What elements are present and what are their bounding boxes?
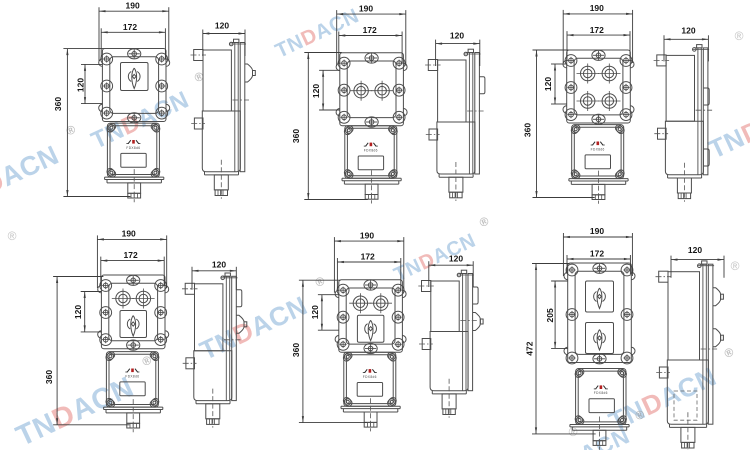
svg-text:190: 190 — [590, 226, 604, 236]
svg-text:172: 172 — [590, 25, 604, 35]
svg-text:360: 360 — [53, 97, 63, 111]
svg-text:172: 172 — [363, 25, 377, 35]
svg-text:360: 360 — [523, 123, 533, 137]
svg-text:120: 120 — [215, 20, 229, 30]
svg-text:360: 360 — [291, 343, 301, 357]
svg-text:120: 120 — [688, 245, 702, 255]
svg-text:190: 190 — [126, 1, 140, 11]
svg-text:120: 120 — [450, 31, 464, 41]
svg-text:FDX8d6: FDX8d6 — [363, 375, 377, 379]
svg-text:205: 205 — [545, 308, 555, 322]
svg-text:190: 190 — [359, 4, 373, 14]
svg-text:120: 120 — [681, 26, 695, 36]
svg-text:®: ® — [735, 29, 744, 43]
svg-text:360: 360 — [291, 129, 301, 143]
svg-text:120: 120 — [449, 254, 463, 264]
svg-text:120: 120 — [310, 305, 320, 319]
svg-text:FDX8d6: FDX8d6 — [125, 374, 139, 378]
svg-text:FDX8d6: FDX8d6 — [594, 391, 608, 395]
svg-text:120: 120 — [543, 77, 553, 91]
svg-text:190: 190 — [360, 230, 374, 240]
svg-text:172: 172 — [590, 248, 604, 258]
svg-text:172: 172 — [361, 252, 375, 262]
svg-text:FDX8d6: FDX8d6 — [126, 146, 140, 150]
svg-text:120: 120 — [73, 305, 83, 319]
svg-text:120: 120 — [212, 259, 226, 269]
svg-text:120: 120 — [76, 78, 86, 92]
svg-text:®: ® — [8, 229, 17, 243]
svg-text:®: ® — [731, 259, 740, 273]
svg-text:360: 360 — [44, 370, 54, 384]
svg-text:120: 120 — [311, 84, 321, 98]
svg-text:472: 472 — [525, 341, 535, 355]
svg-text:FDX8d6: FDX8d6 — [364, 148, 378, 152]
svg-text:FDX8d6: FDX8d6 — [591, 147, 605, 151]
svg-text:190: 190 — [122, 229, 136, 239]
svg-text:172: 172 — [123, 22, 137, 32]
svg-text:172: 172 — [124, 250, 138, 260]
svg-text:190: 190 — [590, 3, 604, 13]
